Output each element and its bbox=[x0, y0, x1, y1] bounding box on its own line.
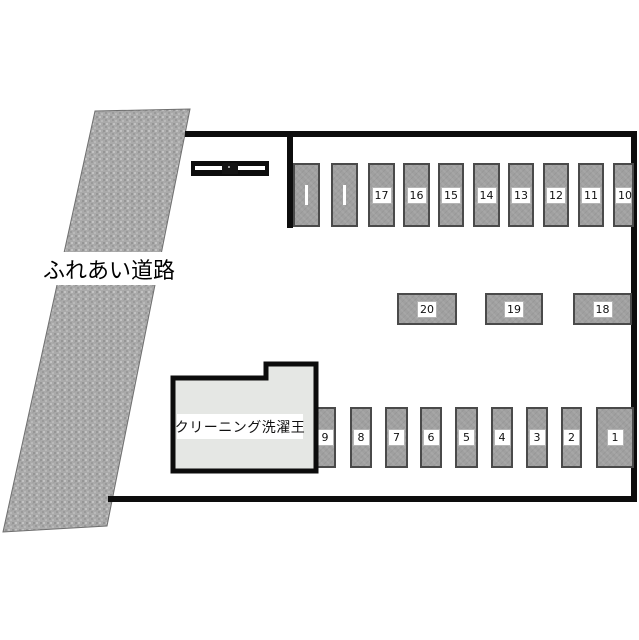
gate-sign-glyph bbox=[222, 163, 238, 174]
parking-stall-20: 20 bbox=[397, 293, 457, 325]
parking-stall-11: 11 bbox=[578, 163, 604, 227]
stall-number-label: 20 bbox=[417, 301, 437, 318]
stall-number-label: 6 bbox=[423, 429, 440, 446]
parking-map: ふれあい道路 1716151413121110201918987654321 ク… bbox=[0, 0, 639, 640]
stall-number-label: 12 bbox=[546, 187, 566, 204]
stall-tick-mark bbox=[305, 185, 308, 205]
parking-stall-8: 8 bbox=[350, 407, 372, 468]
stall-number-label: 10 bbox=[615, 187, 632, 204]
stall-number-label: 19 bbox=[504, 301, 524, 318]
parking-stall-4: 4 bbox=[491, 407, 513, 468]
stall-layer: 1716151413121110201918987654321 bbox=[0, 0, 639, 640]
parking-stall-unmarked-2 bbox=[331, 163, 358, 227]
parking-stall-14: 14 bbox=[473, 163, 500, 227]
stall-number-label: 13 bbox=[511, 187, 531, 204]
stall-number-label: 2 bbox=[563, 429, 580, 446]
stall-number-label: 5 bbox=[458, 429, 475, 446]
parking-stall-16: 16 bbox=[403, 163, 430, 227]
parking-stall-15: 15 bbox=[438, 163, 464, 227]
stall-number-label: 14 bbox=[477, 187, 497, 204]
stall-number-label: 1 bbox=[607, 429, 624, 446]
parking-stall-2: 2 bbox=[561, 407, 582, 468]
stall-number-label: 7 bbox=[388, 429, 405, 446]
gate-barrier-icon bbox=[191, 161, 269, 176]
stall-number-label: 8 bbox=[353, 429, 370, 446]
stall-number-label: 16 bbox=[407, 187, 427, 204]
parking-stall-6: 6 bbox=[420, 407, 442, 468]
parking-stall-1: 1 bbox=[596, 407, 634, 468]
parking-stall-5: 5 bbox=[455, 407, 478, 468]
stall-tick-mark bbox=[343, 185, 346, 205]
stall-number-label: 3 bbox=[529, 429, 546, 446]
stall-number-label: 17 bbox=[372, 187, 392, 204]
parking-stall-18: 18 bbox=[573, 293, 632, 325]
stall-number-label: 18 bbox=[593, 301, 613, 318]
parking-stall-19: 19 bbox=[485, 293, 543, 325]
parking-stall-7: 7 bbox=[385, 407, 408, 468]
parking-stall-12: 12 bbox=[543, 163, 569, 227]
parking-stall-3: 3 bbox=[526, 407, 548, 468]
parking-stall-10: 10 bbox=[613, 163, 634, 227]
parking-stall-17: 17 bbox=[368, 163, 395, 227]
parking-stall-unmarked-1 bbox=[293, 163, 320, 227]
stall-number-label: 11 bbox=[581, 187, 601, 204]
stall-number-label: 4 bbox=[494, 429, 511, 446]
stall-number-label: 15 bbox=[441, 187, 461, 204]
parking-stall-13: 13 bbox=[508, 163, 534, 227]
building-label: クリーニング洗濯王 bbox=[177, 414, 303, 439]
